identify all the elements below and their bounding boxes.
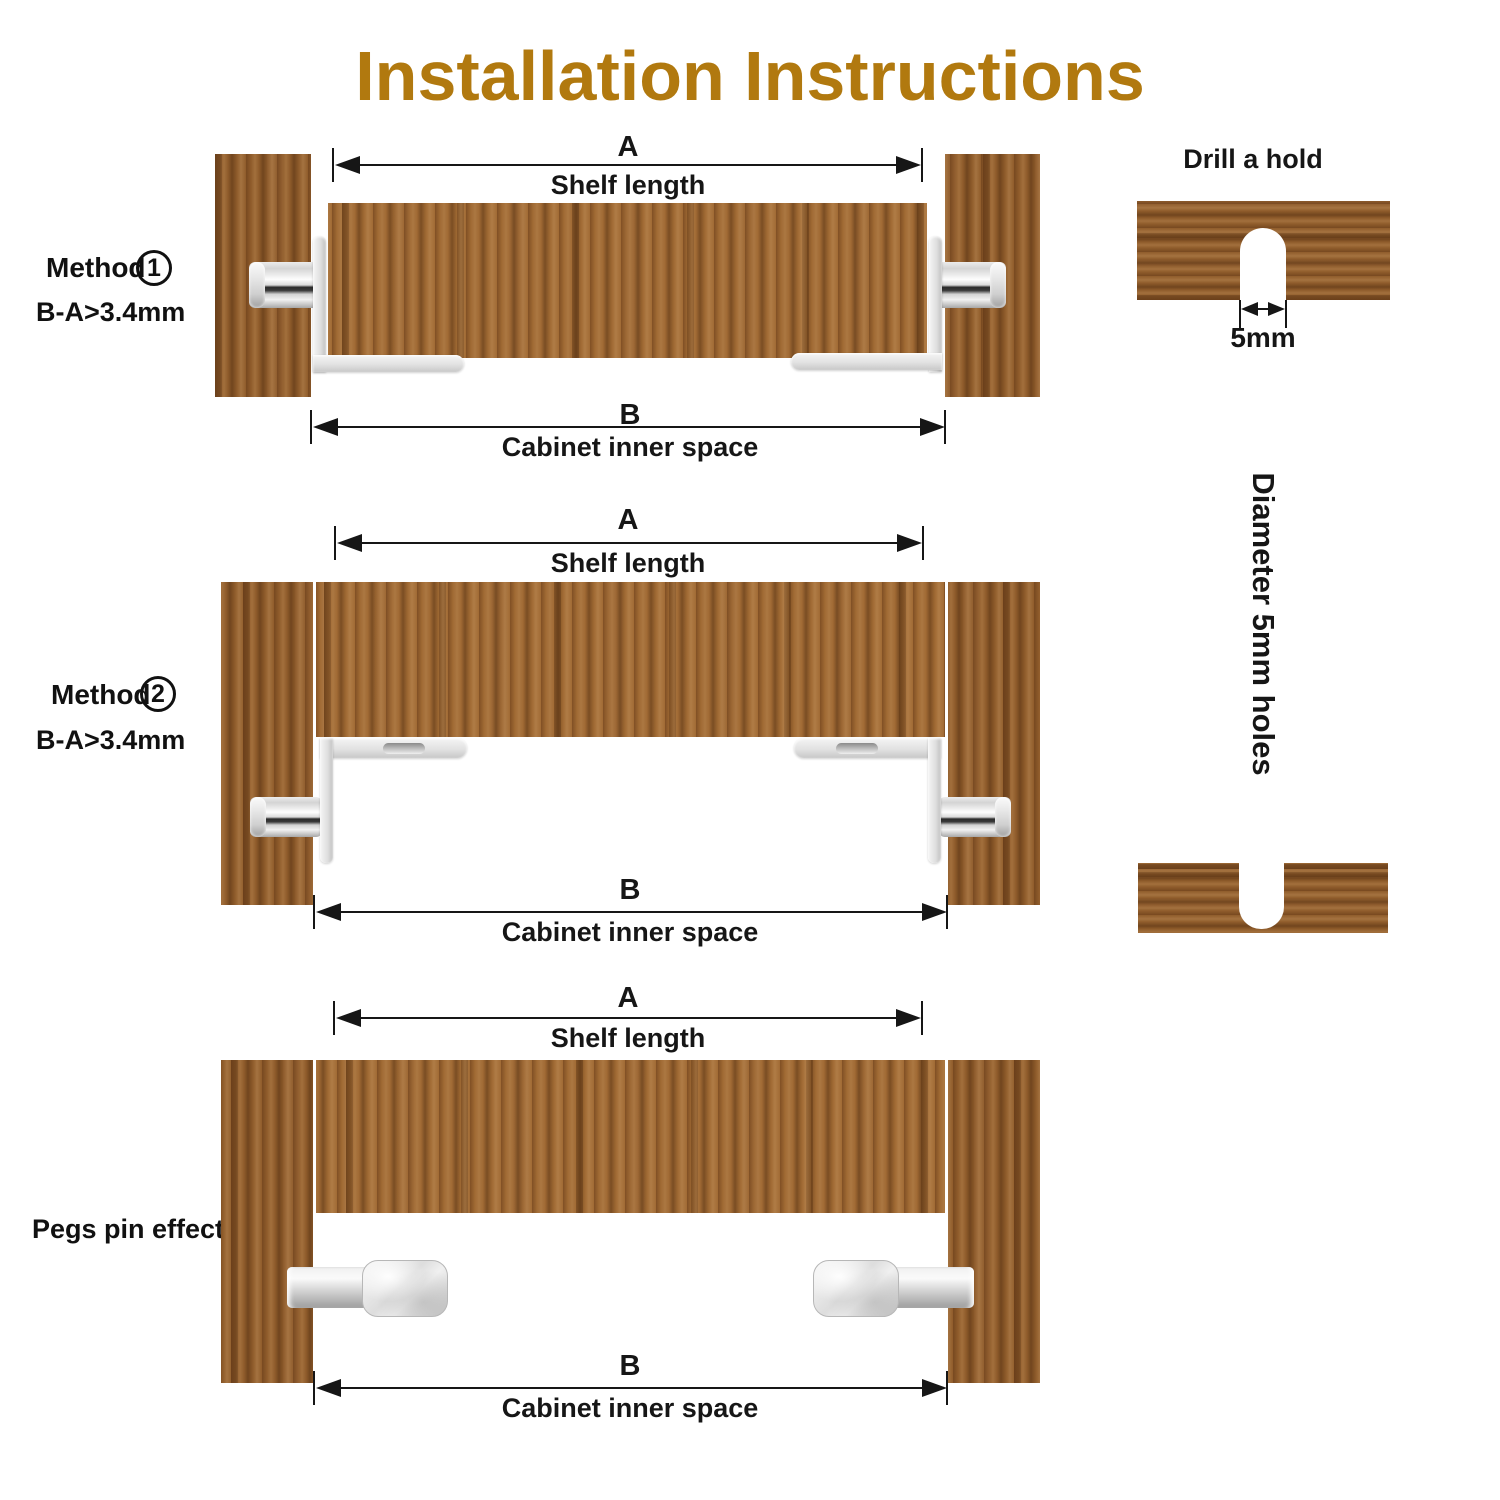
pegs-dim-a-letter: A xyxy=(528,982,728,1015)
method2-left-bracket-vertical xyxy=(320,738,333,863)
dim-tick xyxy=(313,1371,315,1405)
dim-line xyxy=(342,542,918,544)
method1-note: B-A>3.4mm xyxy=(36,297,185,328)
method1-number-badge: 1 xyxy=(136,250,172,286)
pegs-dim-a-label: Shelf length xyxy=(478,1023,778,1054)
method1-dim-a-label: Shelf length xyxy=(478,170,778,201)
dim-tick xyxy=(921,148,923,182)
arrow-right-icon xyxy=(1268,302,1285,316)
dim-tick xyxy=(334,526,336,560)
dim-tick xyxy=(922,526,924,560)
method2-dim-b-label: Cabinet inner space xyxy=(480,917,780,948)
arrow-right-icon xyxy=(896,156,921,174)
pegs-side-panel-left xyxy=(221,1060,313,1383)
drill-title: Drill a hold xyxy=(1103,144,1403,175)
arrow-left-icon xyxy=(316,903,341,921)
method1-dim-b-label: Cabinet inner space xyxy=(480,432,780,463)
drilled-hole xyxy=(1240,228,1286,300)
notch-hole xyxy=(1239,863,1284,929)
method1-dim-a-letter: A xyxy=(528,131,728,164)
pegs-right-peg-cylinder xyxy=(892,1267,974,1308)
dim-tick xyxy=(310,410,312,444)
method1-label: Method xyxy=(46,252,146,284)
diameter-note: Diameter 5mm holes xyxy=(1245,464,1281,784)
arrow-right-icon xyxy=(897,534,922,552)
method2-right-bracket-vertical xyxy=(928,738,941,863)
method1-left-bracket-foot xyxy=(313,355,464,372)
method2-label: Method xyxy=(51,679,151,711)
method1-right-bracket-vertical xyxy=(929,236,942,372)
method2-dim-a-label: Shelf length xyxy=(478,548,778,579)
dim-tick xyxy=(332,148,334,182)
method2-side-panel-left xyxy=(221,582,313,905)
pegs-right-peg-head xyxy=(813,1260,899,1317)
arrow-right-icon xyxy=(922,1379,947,1397)
arrow-right-icon xyxy=(896,1009,921,1027)
method2-note: B-A>3.4mm xyxy=(36,725,185,756)
method1-shelf xyxy=(328,203,927,358)
pegs-side-panel-right xyxy=(948,1060,1040,1383)
method1-right-peg-cap xyxy=(990,262,1006,308)
arrow-left-icon xyxy=(1241,302,1258,316)
pegs-dim-b-label: Cabinet inner space xyxy=(480,1393,780,1424)
arrow-left-icon xyxy=(335,156,360,174)
dim-line xyxy=(340,164,916,166)
method2-shelf xyxy=(316,582,945,737)
dim-tick xyxy=(333,1001,335,1035)
dim-line xyxy=(318,426,938,428)
dim-tick xyxy=(313,895,315,929)
dim-line xyxy=(320,1387,940,1389)
method2-left-bracket-slot xyxy=(383,743,425,754)
pegs-shelf xyxy=(316,1060,945,1213)
method2-right-peg-cap xyxy=(995,797,1011,837)
method1-left-peg-cap xyxy=(249,262,265,308)
dim-line xyxy=(320,911,940,913)
method2-dim-a-letter: A xyxy=(528,504,728,537)
method1-right-bracket-foot xyxy=(791,353,942,370)
pegs-left-peg-head xyxy=(362,1260,448,1317)
dim-tick xyxy=(921,1001,923,1035)
method2-side-panel-right xyxy=(948,582,1040,905)
arrow-left-icon xyxy=(316,1379,341,1397)
method2-number-badge: 2 xyxy=(140,676,176,712)
pegs-effect-label: Pegs pin effect xyxy=(32,1214,224,1245)
pegs-left-peg-cylinder xyxy=(287,1267,369,1308)
arrow-left-icon xyxy=(336,1009,361,1027)
arrow-right-icon xyxy=(922,903,947,921)
method2-left-peg-cap xyxy=(250,797,266,837)
page-title: Installation Instructions xyxy=(0,36,1500,116)
arrow-right-icon xyxy=(920,418,945,436)
hole-width-label: 5mm xyxy=(1163,322,1363,354)
arrow-left-icon xyxy=(313,418,338,436)
method1-left-bracket-vertical xyxy=(313,236,326,372)
installation-instructions-sheet: Installation Instructions Method 1 B-A>3… xyxy=(0,0,1500,1500)
dim-line xyxy=(341,1017,917,1019)
method2-dim-b-letter: B xyxy=(530,874,730,907)
method2-right-bracket-slot xyxy=(836,743,878,754)
arrow-left-icon xyxy=(337,534,362,552)
pegs-dim-b-letter: B xyxy=(530,1350,730,1383)
